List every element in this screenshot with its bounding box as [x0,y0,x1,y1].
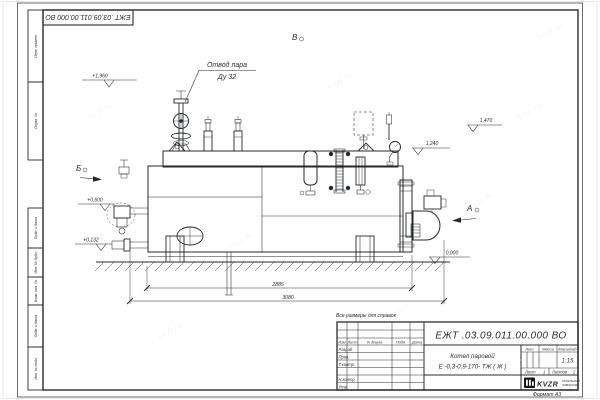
callout-line2: Ду 32 [217,74,236,81]
scale-value: 1:15 [562,359,574,365]
margin-stamps: Перв. примен. Справ. № Подп. и дата Инв.… [28,10,43,390]
col-podp: Подп. [396,339,406,344]
product-name-2: Е -0,3-0,9-170- ТЖ ( Ж ) [439,364,507,371]
sheet-label: Лист [524,370,536,375]
water-gauge-glass [329,149,350,193]
row-utv: Утв. [339,384,348,389]
row-tkontr: Т.контр. [339,362,356,367]
doc-number: ЕЖТ .03.09.011.00.000 ВО [435,331,566,342]
product-name-1: Котел паровой [450,353,495,360]
col-list: Лист [346,339,358,344]
separator-cylinder [300,151,317,195]
margin-label-6: Подп. и дата [34,315,38,338]
dimension-lines: 2885 3080 [127,240,447,304]
elevation-1960: +1,960 [92,74,108,80]
kvzr-logo: KVZR КОТЕЛЬНЫЙ ЗАВОД РЭР [524,378,580,389]
view-b-arrow: Б [76,164,102,182]
margin-label-4: Инв. № дубл. [34,251,38,273]
elevation-marks: +1,960 1,470 1,240 +0,600 +0,132 0,000 [75,74,502,264]
margin-label-3: Подп. и дата [34,217,38,240]
left-fittings [107,160,148,251]
logo-sub1: КОТЕЛЬНЫЙ [562,379,580,383]
steam-outlet-valve [172,91,191,151]
drain-pipe [225,252,233,295]
elevation-0600: +0,600 [87,198,103,204]
margin-label-2: Справ. № [34,113,38,129]
sheet-value: 1 [543,370,545,375]
logo-sub2: ЗАВОД РЭР [562,383,578,387]
elevation-1240: 1,240 [426,141,439,147]
col-ndoc: N докум. [367,339,383,344]
lit-label: Лит. [524,346,534,351]
ground-hatch [95,262,450,271]
safety-valve-1 [204,116,212,151]
svg-text:kvzr.ru: kvzr.ru [536,20,564,42]
scale-label: Масштаб [558,346,577,351]
view-label-v: В [292,33,298,42]
callout-line1: Отвод пара [207,61,247,69]
svg-text:kvzr.ru: kvzr.ru [326,70,354,92]
thermometer [387,112,392,140]
margin-label-7: Инв. № подл. [34,357,38,379]
blueprint-page: kvzr.ru kvzr.ru kvzr.ru kvzr.ru kvzr.ru … [0,0,600,400]
view-label-a: А [466,204,472,213]
sheets-label: Листов [551,370,568,375]
top-rotated-stamp: ЕЖТ .03.09.011.00.000 ВО [43,10,133,25]
gauge-bracket [358,143,374,151]
mass-label: Масса [542,346,554,351]
logo-text: KVZR [537,380,559,389]
svg-text:kvzr.ru: kvzr.ru [156,320,184,342]
boiler-legs [166,236,374,262]
gauge-placeholder-dashed [354,112,373,149]
elevation-1470: 1,470 [480,118,493,124]
watermark-layer: kvzr.ru kvzr.ru kvzr.ru kvzr.ru kvzr.ru … [86,20,564,342]
margin-label-1: Перв. примен. [34,34,38,58]
svg-text:kvzr.ru: kvzr.ru [226,230,254,252]
safety-valve-2 [234,116,242,151]
sight-column [356,157,370,194]
sheets-value: 2 [572,370,576,375]
reference-note: Все размеры для справок [336,313,397,319]
manhole [177,227,203,245]
elevation-0132: +0,132 [83,238,99,244]
col-izm: Изм [338,339,346,344]
dimension-overall-length: 3080 [282,295,294,301]
watermark-text: kvzr.ru [86,100,114,122]
elevation-0000: 0,000 [446,251,459,257]
view-v-label: В [292,33,304,42]
dimension-body-length: 2885 [271,282,284,288]
callout-steam-outlet: Отвод пара Ду 32 [185,61,256,102]
margin-label-5: Взам. инв. № [34,280,38,302]
format-note: Формат А3 [533,392,561,398]
row-nkontr: Н.контр. [339,377,356,382]
col-data: Дата [411,339,423,344]
title-block: ЕЖТ .03.09.011.00.000 ВО Котел паровой Е… [337,322,580,390]
view-label-b: Б [76,164,81,173]
rotated-doc-number: ЕЖТ .03.09.011.00.000 ВО [45,13,131,20]
row-razrab: Разраб. [339,347,354,352]
row-prov: Пров. [339,354,350,359]
svg-text:kvzr.ru: kvzr.ru [516,100,544,122]
